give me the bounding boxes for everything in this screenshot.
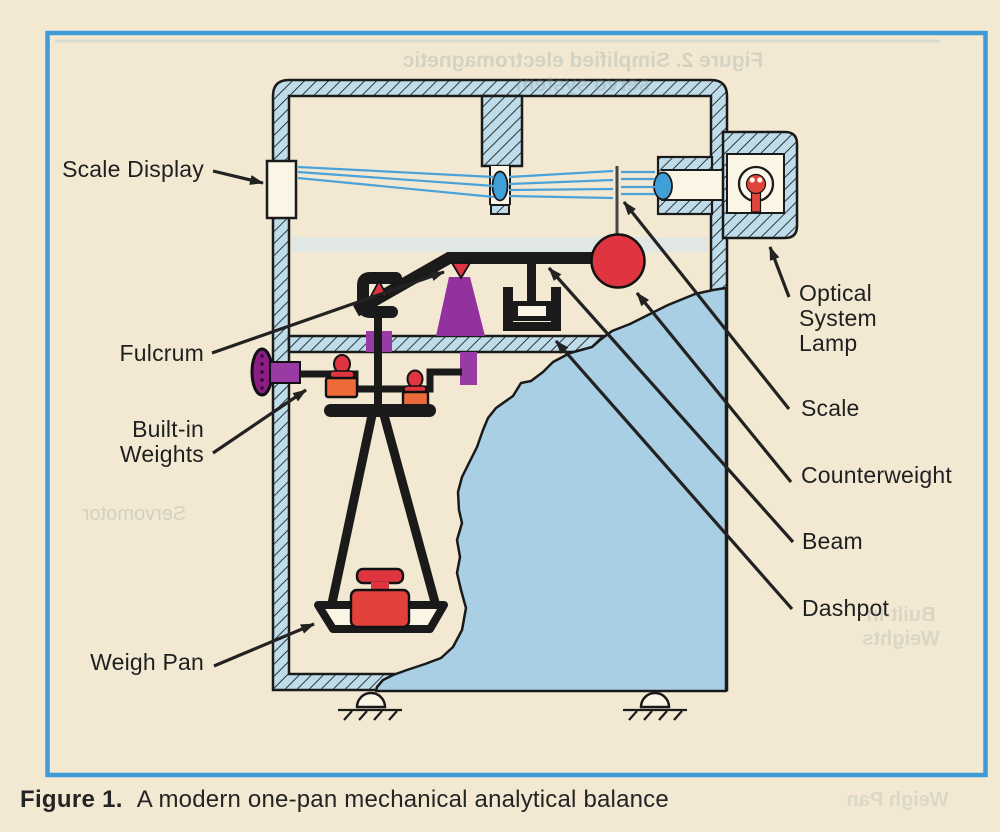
pan-hanger-bar bbox=[324, 404, 436, 417]
ground-symbol bbox=[623, 710, 687, 720]
arrow-optical-system-lamp bbox=[770, 247, 789, 297]
ground-symbol bbox=[338, 710, 402, 720]
label-counterweight: Counterweight bbox=[801, 463, 952, 488]
arrow-weigh-pan bbox=[214, 624, 314, 666]
arrow-scale-display bbox=[213, 171, 263, 183]
label-optical-system-lamp: Optical System Lamp bbox=[799, 281, 877, 356]
light-rays bbox=[298, 167, 655, 198]
scale-display-window bbox=[267, 161, 296, 218]
interior-shading-band bbox=[292, 237, 708, 252]
label-weigh-pan: Weigh Pan bbox=[22, 650, 204, 675]
figure-caption-number: Figure 1. bbox=[20, 786, 123, 813]
figure-caption-text: A modern one-pan mechanical analytical b… bbox=[137, 786, 669, 813]
label-dashpot: Dashpot bbox=[802, 596, 889, 621]
counterweight-ball bbox=[592, 235, 645, 288]
label-built-in-weights: Built-in Weights bbox=[22, 417, 204, 467]
built-in-weight bbox=[403, 371, 428, 410]
leveling-foot bbox=[338, 693, 402, 720]
collimator-lens bbox=[654, 173, 672, 200]
sample-weight bbox=[351, 569, 409, 627]
knife-edge-fulcrum bbox=[452, 263, 470, 278]
label-fulcrum: Fulcrum bbox=[22, 341, 204, 366]
pan-suspension-rod bbox=[374, 312, 382, 410]
leveling-foot bbox=[623, 693, 687, 720]
label-scale: Scale bbox=[801, 396, 860, 421]
arrow-built-in-weights bbox=[213, 390, 306, 453]
knob-shaft bbox=[270, 362, 300, 383]
label-scale-display: Scale Display bbox=[22, 157, 204, 182]
figure-caption: Figure 1.A modern one-pan mechanical ana… bbox=[20, 786, 960, 814]
built-in-weight bbox=[326, 355, 357, 397]
fulcrum-post bbox=[436, 277, 485, 336]
label-beam: Beam bbox=[802, 529, 863, 554]
condenser-lens bbox=[493, 172, 508, 201]
scanned-figure-page: Scale Display Fulcrum Built-in Weights W… bbox=[0, 0, 1000, 832]
beam-arm bbox=[356, 258, 612, 311]
beam-arrest-bushing bbox=[460, 352, 477, 385]
